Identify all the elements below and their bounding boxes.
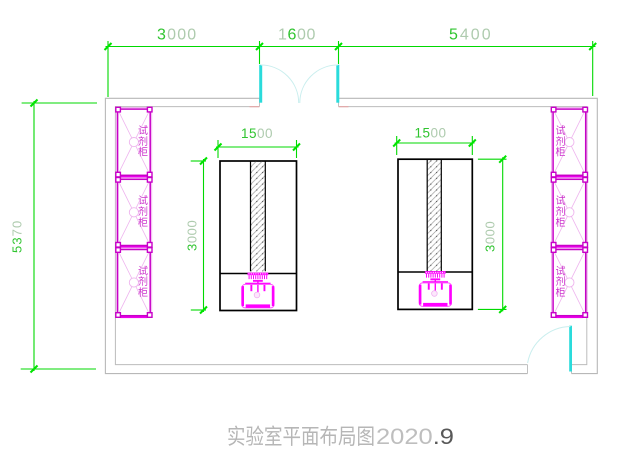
svg-text:5400: 5400 — [449, 27, 493, 44]
svg-text:1600: 1600 — [278, 27, 316, 44]
svg-text:3000: 3000 — [157, 27, 197, 44]
svg-text:3000: 3000 — [185, 220, 200, 251]
svg-text:3000: 3000 — [483, 221, 498, 252]
svg-text:实验室平面布局图: 实验室平面布局图 — [227, 425, 375, 449]
svg-text:1500: 1500 — [241, 126, 273, 141]
svg-text:1500: 1500 — [415, 126, 447, 141]
svg-text:2020.9: 2020.9 — [376, 424, 454, 449]
svg-text:5370: 5370 — [10, 220, 25, 253]
